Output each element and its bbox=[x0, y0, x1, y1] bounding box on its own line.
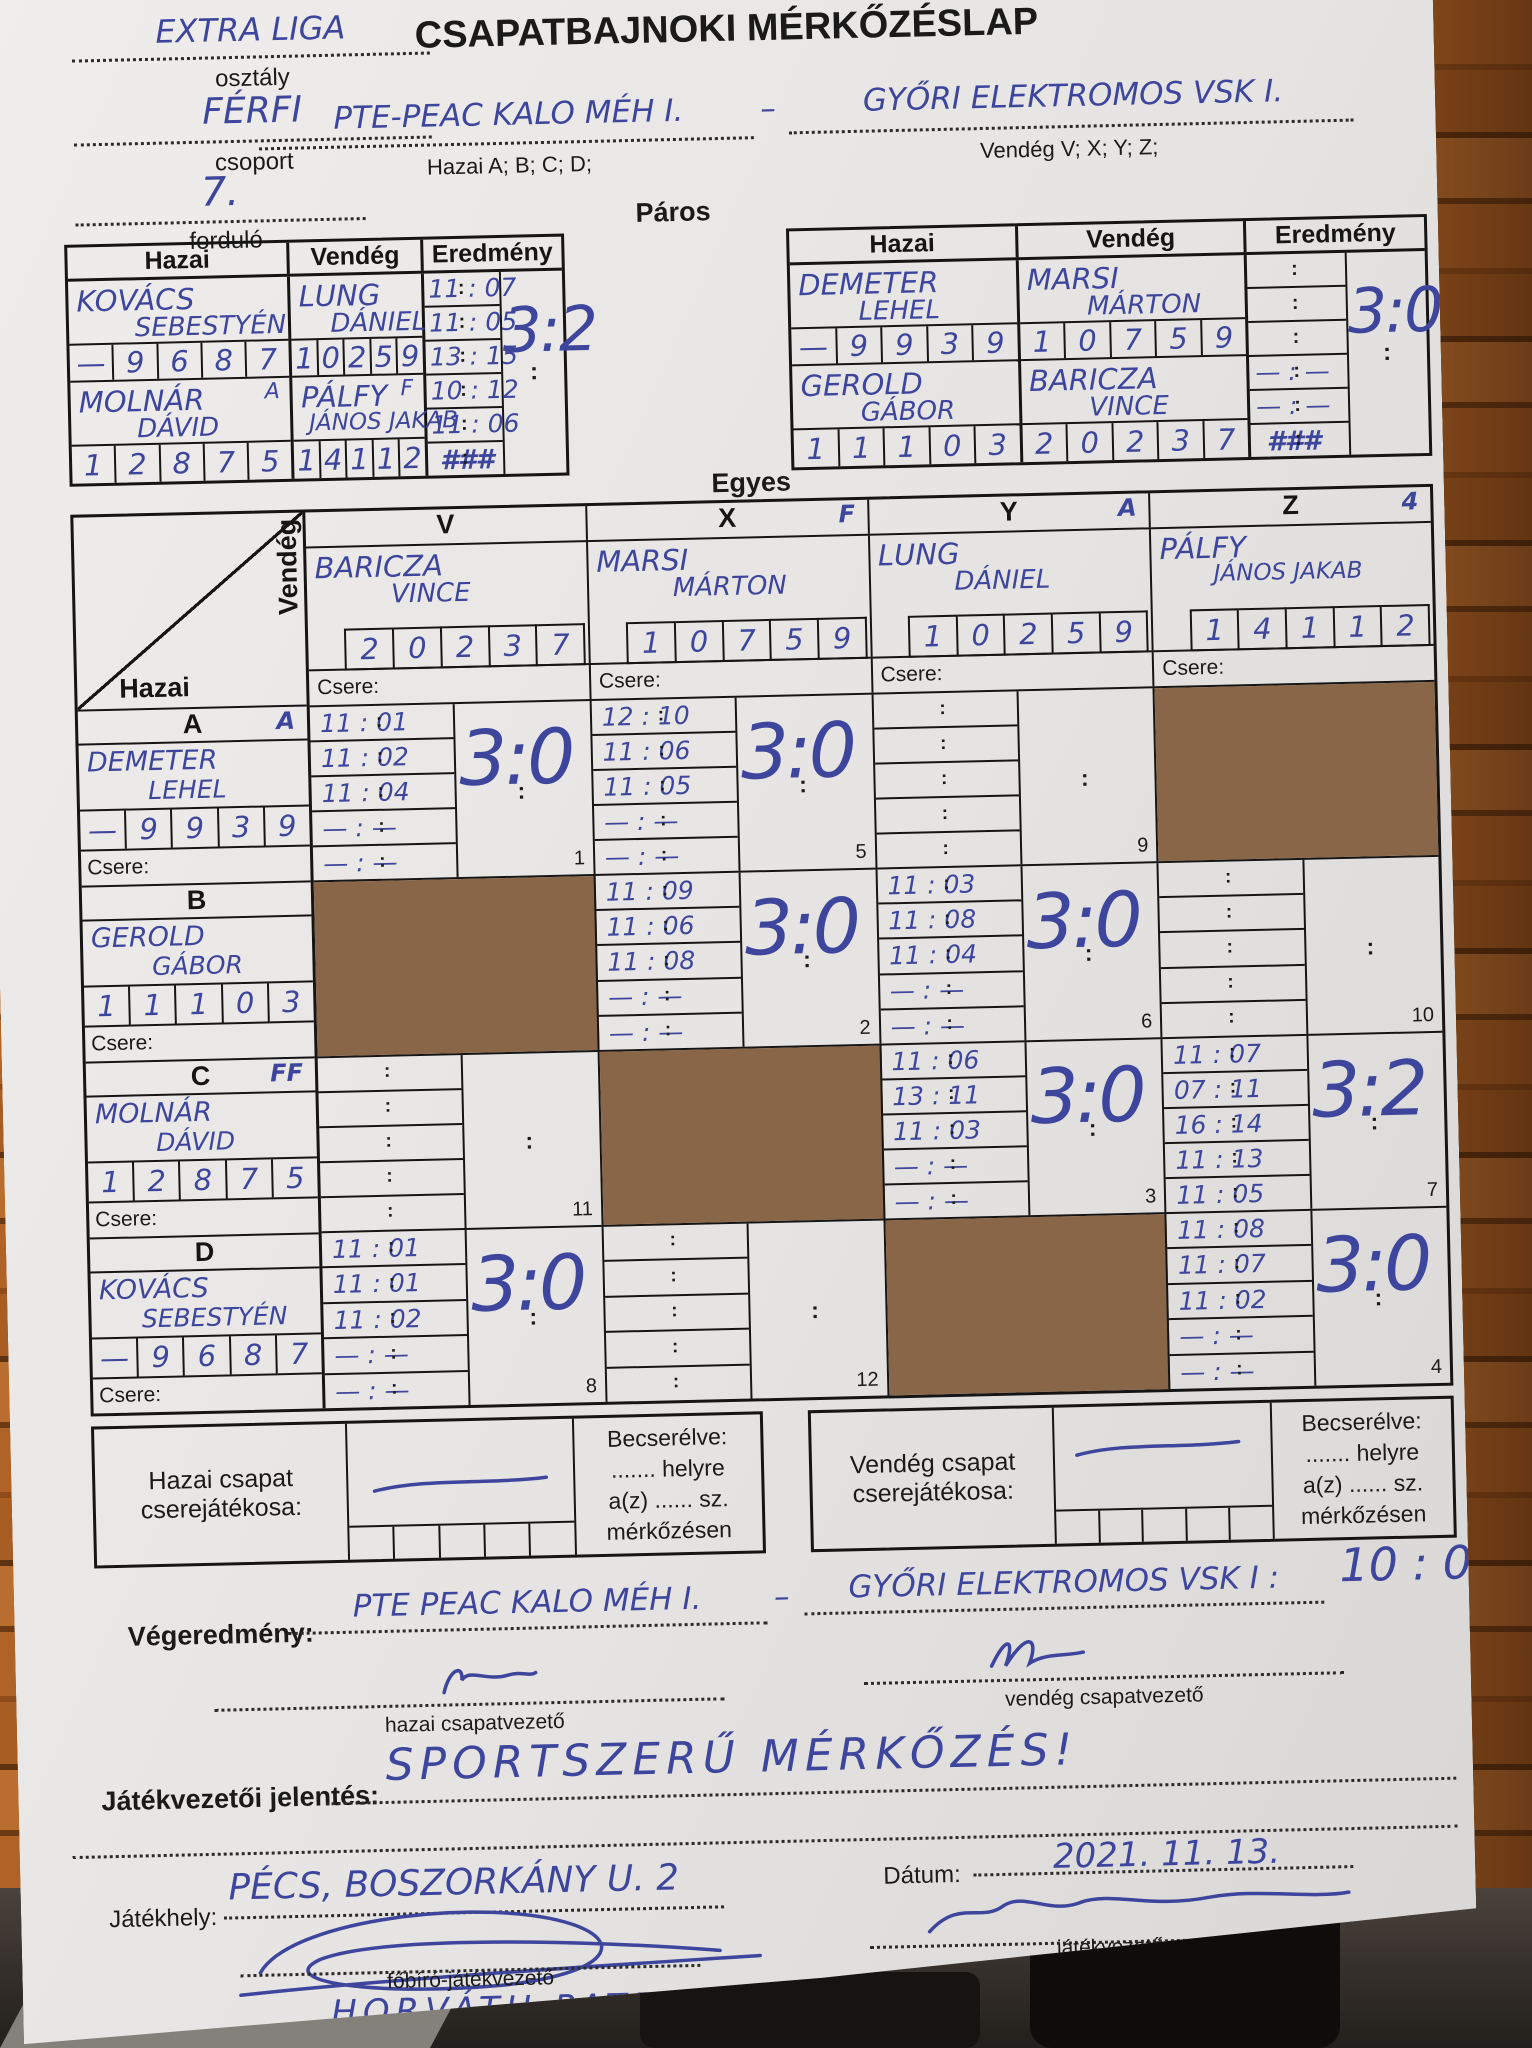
license-row: 10759 bbox=[626, 617, 867, 664]
license-digit: 9 bbox=[833, 621, 852, 655]
license-digit: 9 bbox=[1214, 320, 1233, 354]
license-digit: 1 bbox=[101, 1165, 120, 1199]
license-digit: 1 bbox=[923, 619, 942, 653]
license-row: 10259 bbox=[292, 338, 423, 378]
license-digit: 1 bbox=[189, 987, 208, 1021]
license-digit: 1 bbox=[1205, 613, 1224, 647]
col-vendeg: Vendég bbox=[289, 240, 423, 274]
set-score: 11 : 08 bbox=[607, 946, 696, 977]
player-last-name: DEMETER bbox=[87, 744, 218, 778]
license-digit: 8 bbox=[172, 446, 191, 480]
license-digit: — bbox=[88, 813, 118, 848]
license-digit: 7 bbox=[1123, 322, 1142, 356]
scoresheet-content: EXTRA LIGA osztály FÉRFI csoport 7. ford… bbox=[0, 0, 1462, 2040]
license-digit: 7 bbox=[551, 628, 570, 662]
becserelve-line: ....... helyre bbox=[574, 1451, 761, 1486]
col-letter-X: XF bbox=[587, 500, 869, 540]
license-row: 10759 bbox=[1020, 319, 1246, 361]
license-digit: 2 bbox=[1126, 424, 1145, 458]
set-score: 07 : 11 bbox=[1174, 1074, 1263, 1105]
col-letter-Z: Z4 bbox=[1150, 487, 1430, 527]
match-total: 3:0 bbox=[1315, 1225, 1430, 1304]
match-total: 3:0 bbox=[744, 888, 859, 967]
set-score-cell: 10 : 12 bbox=[426, 374, 502, 410]
row-letter: CFF bbox=[86, 1058, 316, 1097]
license-digit: 1 bbox=[143, 988, 162, 1022]
license-row: 12875 bbox=[72, 442, 292, 484]
page-title: CSAPATBAJNOKI MÉRKŐZÉSLAP bbox=[346, 0, 1107, 59]
license-digit: 2 bbox=[1035, 426, 1054, 460]
group-value: 7. bbox=[200, 169, 239, 216]
match-cell-C-V: 11 bbox=[318, 1052, 604, 1232]
license-row: —9687 bbox=[69, 341, 289, 383]
match-row-B: 11 : 0911 : 0611 : 08— : —— : — 3:02 11 … bbox=[314, 857, 1443, 1058]
match-total: 3:0 bbox=[740, 713, 855, 792]
license-digit: 2 bbox=[1396, 609, 1415, 643]
player-first-name: SEBESTYÉN bbox=[142, 1301, 288, 1333]
pen-dash bbox=[366, 1467, 557, 1501]
license-digit: 0 bbox=[971, 618, 990, 652]
license-digit: 7 bbox=[239, 1162, 258, 1196]
set-score: 11 : 01 bbox=[333, 1268, 422, 1299]
set-score: — : — bbox=[1180, 1356, 1255, 1387]
player-name-cell: KOVÁCSSEBESTYÉN bbox=[90, 1268, 320, 1339]
set-score: 11 : 01 bbox=[320, 707, 409, 738]
becserelve-line: Becserélve: bbox=[1272, 1405, 1452, 1440]
set-score: — : — bbox=[1179, 1320, 1254, 1351]
match-total: 3:2 bbox=[1311, 1050, 1426, 1129]
match-number: 6 bbox=[1141, 1010, 1153, 1033]
match-cell-A-Y: 9 bbox=[873, 688, 1159, 868]
match-total: 3:2 bbox=[502, 298, 597, 362]
license-digit: 1 bbox=[806, 431, 825, 465]
match-number: 5 bbox=[855, 841, 867, 864]
license-digit: 9 bbox=[849, 328, 868, 362]
egyes-corner-cell: Vendég Hazai bbox=[73, 513, 306, 712]
license-digit: 0 bbox=[943, 428, 962, 462]
player-name-cell: GEROLDGÁBOR bbox=[792, 361, 1019, 430]
final-result-score: 10 : 0 bbox=[1339, 1535, 1473, 1592]
license-row: —9687 bbox=[92, 1334, 322, 1379]
player-name-cell: PÁLFYFJÁNOS JAKAB bbox=[293, 375, 425, 442]
set-score: 11 : 02 bbox=[1178, 1285, 1267, 1316]
col-vendeg: Vendég bbox=[1018, 221, 1247, 257]
match-cell-A-V: 11 : 0111 : 0211 : 04— : —— : — 3:01 bbox=[310, 701, 596, 881]
becserelve-line: a(z) ...... sz. bbox=[575, 1482, 762, 1517]
paros-table-away: Hazai Vendég Eredmény DEMETERLEHEL —9939… bbox=[786, 214, 1432, 470]
paros-total-cell: 3:2 bbox=[501, 271, 566, 474]
blocked-cell-C-X bbox=[599, 1045, 885, 1225]
match-number: 2 bbox=[859, 1016, 871, 1039]
license-digit: 3 bbox=[1171, 423, 1190, 457]
home-hint: Hazai A; B; C; D; bbox=[299, 148, 719, 184]
set-score: 11 : 01 bbox=[332, 1233, 421, 1264]
match-number: 8 bbox=[586, 1375, 598, 1398]
set-score: 11 : 04 bbox=[321, 777, 410, 808]
set-score: — : — bbox=[335, 1375, 410, 1406]
player-first-name: GÁBOR bbox=[860, 396, 955, 428]
license-row: —9939 bbox=[791, 324, 1017, 366]
player-first-name: GÁBOR bbox=[152, 950, 243, 981]
col-eredmeny: Eredmény bbox=[1246, 217, 1424, 252]
match-total: 3:0 bbox=[1026, 881, 1141, 960]
license-digit: 5 bbox=[1066, 616, 1085, 650]
player-first-name: MÁRTON bbox=[1087, 289, 1202, 322]
license-row: 14112 bbox=[1189, 604, 1430, 651]
csere-label: Csere: bbox=[93, 1374, 323, 1413]
col-letter-V: V bbox=[305, 506, 587, 546]
license-digit: 8 bbox=[243, 1338, 262, 1372]
match-cell-B-Y: 11 : 0311 : 0811 : 04— : —— : — 3:06 bbox=[877, 864, 1163, 1044]
player-name-cell: MOLNÁRADÁVID bbox=[70, 378, 291, 447]
handwritten-mark: A bbox=[1118, 494, 1137, 522]
license-digit: 1 bbox=[97, 989, 116, 1023]
license-digit: 9 bbox=[151, 1340, 170, 1374]
match-number: 11 bbox=[572, 1198, 593, 1221]
home-player-row-D: D KOVÁCSSEBESTYÉN —9687 Csere: bbox=[90, 1234, 323, 1413]
set-score: — : — bbox=[1256, 390, 1331, 421]
license-digit: — bbox=[799, 329, 829, 364]
set-score-cell: 11 : 06 bbox=[427, 408, 503, 444]
set-score: — : — bbox=[890, 1010, 965, 1041]
license-digit: 9 bbox=[126, 345, 145, 379]
license-digit: 6 bbox=[197, 1339, 216, 1373]
becserelve-line: ....... helyre bbox=[1272, 1436, 1452, 1471]
match-number: 10 bbox=[1411, 1004, 1434, 1027]
player-name-cell: MOLNÁRDÁVID bbox=[87, 1092, 317, 1163]
license-digit: 0 bbox=[408, 631, 427, 665]
handwritten-mark: F bbox=[838, 500, 855, 528]
pen-dash bbox=[1069, 1433, 1250, 1467]
set-score: — : — bbox=[322, 813, 397, 844]
license-row: 20237 bbox=[344, 623, 585, 670]
set-score: 11 : 09 bbox=[605, 876, 694, 907]
set-score: 11 : 08 bbox=[1177, 1214, 1266, 1245]
match-cell-C-Y: 11 : 0613 : 1111 : 03— : —— : — 3:03 bbox=[881, 1039, 1167, 1219]
set-score: 11 : 02 bbox=[333, 1304, 422, 1335]
handwritten-mark: F bbox=[400, 376, 413, 401]
license-digit: 2 bbox=[360, 632, 379, 666]
license-digit: 7 bbox=[258, 342, 277, 376]
hazai-label: Hazai bbox=[119, 672, 190, 705]
match-row-D: 11 : 0111 : 0111 : 02— : —— : — 3:08 12 … bbox=[322, 1208, 1451, 1409]
blocked-cell-B-V bbox=[314, 876, 600, 1056]
handwritten-mark: A bbox=[264, 379, 280, 404]
license-digit: 1 bbox=[852, 430, 871, 464]
row-letter-text: D bbox=[194, 1237, 214, 1267]
license-digit: — bbox=[100, 1341, 130, 1376]
player-first-name: SEBESTYÉN bbox=[135, 310, 287, 343]
license-row: 12875 bbox=[88, 1158, 318, 1203]
csere-label: Csere: bbox=[591, 659, 873, 699]
license-digit: 3 bbox=[940, 326, 959, 360]
away-player-names-row: BARICZAVINCE 20237 MARSIMÁRTON 10759 LUN… bbox=[306, 523, 1434, 672]
away-player-V: BARICZAVINCE 20237 bbox=[306, 542, 590, 670]
set-score: 11 : 13 bbox=[1175, 1144, 1264, 1175]
license-digit: 9 bbox=[986, 325, 1005, 359]
set-score: — : — bbox=[334, 1339, 409, 1370]
set-score-cell bbox=[1248, 287, 1346, 323]
license-row: 14112 bbox=[294, 439, 425, 479]
license-digit: 5 bbox=[1169, 321, 1188, 355]
match-number: 12 bbox=[856, 1369, 879, 1392]
player-name-cell: KOVÁCSSEBESTYÉN bbox=[68, 277, 289, 346]
set-score: — : — bbox=[894, 1185, 969, 1216]
becserelve-line: a(z) ...... sz. bbox=[1273, 1467, 1453, 1502]
match-total: 3:0 bbox=[470, 1245, 585, 1324]
set-score: 11 : 08 bbox=[888, 905, 977, 936]
license-digit: 8 bbox=[214, 343, 233, 377]
set-score: 13 : 11 bbox=[892, 1080, 981, 1111]
license-digit: — bbox=[76, 345, 106, 380]
license-digit: 1 bbox=[350, 442, 369, 476]
col-eredmeny: Eredmény bbox=[423, 237, 562, 271]
player-first-name: MÁRTON bbox=[672, 570, 787, 603]
player-first-name: DÁNIEL bbox=[330, 307, 426, 339]
home-captain-line bbox=[214, 1664, 725, 1712]
away-hint: Vendég V; X; Y; Z; bbox=[859, 131, 1279, 167]
license-digit: 0 bbox=[689, 625, 708, 659]
license-digit: 5 bbox=[286, 1161, 305, 1195]
player-name-cell: LUNGDÁNIEL bbox=[290, 274, 422, 341]
egyes-match-grid: V XF YA Z4 BARICZAVINCE 20237 MARSIMÁRTO… bbox=[305, 487, 1450, 1408]
set-score: — : — bbox=[605, 841, 680, 872]
license-digit: 0 bbox=[1078, 323, 1097, 357]
license-digit: 1 bbox=[1300, 611, 1319, 645]
set-score: 11 : 05 bbox=[603, 771, 692, 802]
home-substitute-label: Hazai csapat cserejátékosa: bbox=[94, 1424, 350, 1566]
set-score: 11 : 04 bbox=[889, 940, 978, 971]
paros-away-players: MARSIMÁRTON 10759 BARICZAVINCE 20237 bbox=[1018, 255, 1251, 462]
set-score: — : — bbox=[604, 806, 679, 837]
match-cell-B-X: 11 : 0911 : 0611 : 08— : —— : — 3:02 bbox=[595, 870, 881, 1050]
csere-label: Csere: bbox=[81, 846, 311, 885]
license-digit: 1 bbox=[297, 443, 316, 477]
crossed-out-mark: ### bbox=[1266, 425, 1320, 457]
license-digit: 1 bbox=[642, 626, 661, 660]
set-score-cell: — : — bbox=[1250, 389, 1348, 425]
match-cell-C-Z: 11 : 0707 : 1116 : 1411 : 1311 : 05 3:27 bbox=[1163, 1032, 1447, 1212]
license-digit: 9 bbox=[895, 327, 914, 361]
license-digit: 7 bbox=[737, 624, 756, 658]
match-number: 9 bbox=[1137, 835, 1149, 858]
away-substitute-field bbox=[1054, 1403, 1275, 1544]
license-digit: 7 bbox=[1217, 422, 1236, 456]
player-last-name: KOVÁCS bbox=[99, 1273, 210, 1306]
csere-label: Csere: bbox=[85, 1022, 315, 1061]
license-digit: 2 bbox=[147, 1164, 166, 1198]
set-score: — : — bbox=[609, 1017, 684, 1048]
away-substitute-label: Vendég csapat cserejátékosa: bbox=[811, 1408, 1057, 1549]
paros-result-column: — : — — : — ### 3:0 bbox=[1247, 251, 1429, 457]
player-first-name: VINCE bbox=[1089, 391, 1169, 423]
paros-total-cell: 3:0 bbox=[1346, 251, 1429, 455]
blocked-cell-D-Y bbox=[885, 1214, 1171, 1396]
license-digit: 4 bbox=[323, 442, 342, 476]
player-first-name: VINCE bbox=[391, 578, 471, 610]
away-captain-label: vendég csapatvezető bbox=[894, 1681, 1314, 1715]
row-letter: B bbox=[82, 882, 312, 921]
set-score: 11 : 06 bbox=[602, 736, 691, 767]
set-score: — : — bbox=[323, 848, 398, 879]
row-letter: AA bbox=[78, 706, 308, 745]
csere-label: Csere: bbox=[1154, 646, 1434, 686]
final-result-label: Végeredmény: bbox=[127, 1618, 314, 1653]
player-name-cell: BARICZAVINCE bbox=[1021, 356, 1248, 425]
license-row: 10259 bbox=[908, 611, 1149, 658]
home-player-row-C: CFF MOLNÁRDÁVID 12875 Csere: bbox=[86, 1058, 319, 1239]
player-name-cell: MARSIMÁRTON bbox=[1018, 255, 1245, 324]
set-score: 11 : 03 bbox=[887, 870, 976, 901]
license-row: —9939 bbox=[80, 806, 310, 851]
set-score: — : — bbox=[893, 1150, 968, 1181]
match-row-C: 11 11 : 0613 : 1111 : 03— : —— : — 3:03 … bbox=[318, 1032, 1447, 1233]
license-digit: 9 bbox=[278, 809, 297, 843]
set-score: 11 : 02 bbox=[321, 742, 410, 773]
paros-section-label: Páros bbox=[555, 194, 791, 230]
col-hazai: Hazai bbox=[67, 243, 290, 279]
row-letter-text: A bbox=[182, 709, 202, 739]
substitute-license-boxes bbox=[1056, 1505, 1272, 1544]
match-number: 3 bbox=[1145, 1185, 1157, 1208]
photo-scene: EXTRA LIGA osztály FÉRFI csoport 7. ford… bbox=[0, 0, 1532, 2048]
player-first-name: LEHEL bbox=[148, 774, 227, 805]
away-captain-line bbox=[863, 1638, 1344, 1685]
license-digit: 7 bbox=[290, 1337, 309, 1371]
license-digit: 2 bbox=[1019, 617, 1038, 651]
player-last-name: MOLNÁR bbox=[95, 1097, 213, 1131]
player-first-name: DÁVID bbox=[156, 1126, 235, 1157]
home-player-row-A: AA DEMETERLEHEL —9939 Csere: bbox=[78, 706, 311, 887]
becserelve-cell: Becserélve: ....... helyre a(z) ...... s… bbox=[573, 1414, 763, 1554]
egyes-home-column: Vendég Hazai AA DEMETERLEHEL —9939 Csere… bbox=[73, 512, 325, 1413]
team-separator: – bbox=[760, 91, 776, 127]
match-cell-B-Z: 10 bbox=[1159, 857, 1443, 1037]
set-score: — : — bbox=[608, 981, 683, 1012]
player-last-name: GEROLD bbox=[91, 921, 206, 955]
match-total: 3:0 bbox=[458, 719, 573, 798]
set-score-cell: 13 : 15 bbox=[425, 340, 501, 376]
league-value: EXTRA LIGA bbox=[155, 8, 346, 50]
player-first-name: LEHEL bbox=[858, 295, 940, 327]
csere-label: Csere: bbox=[89, 1198, 319, 1237]
home-player-row-B: B GEROLDGÁBOR 11103 Csere: bbox=[82, 882, 315, 1063]
becserelve-line: mérkőzésen bbox=[1274, 1498, 1454, 1533]
license-digit: 0 bbox=[1080, 425, 1099, 459]
home-substitute-field bbox=[347, 1419, 576, 1560]
license-digit: 9 bbox=[1114, 615, 1133, 649]
crossed-out-mark: ### bbox=[440, 444, 494, 476]
player-name-cell: DEMETERLEHEL bbox=[79, 740, 309, 811]
match-number: 4 bbox=[1431, 1356, 1443, 1379]
license-digit: 7 bbox=[216, 445, 235, 479]
away-player-X: MARSIMÁRTON 10759 bbox=[588, 536, 872, 664]
player-first-name: JÁNOS JAKAB bbox=[1213, 557, 1362, 586]
license-digit: 2 bbox=[403, 440, 422, 474]
paros-home-players: KOVÁCSSEBESTYÉN —9687 MOLNÁRADÁVID 12875 bbox=[68, 277, 295, 484]
csere-label: Csere: bbox=[872, 653, 1154, 693]
license-digit: 8 bbox=[193, 1163, 212, 1197]
match-total: 3:0 bbox=[1030, 1056, 1145, 1135]
match-cell-D-Z: 11 : 0811 : 0711 : 02— : —— : — 3:04 bbox=[1167, 1208, 1451, 1390]
license-digit: 1 bbox=[1032, 324, 1051, 358]
license-digit: 3 bbox=[232, 810, 251, 844]
away-substitute-box: Vendég csapat cserejátékosa: Becserélve:… bbox=[808, 1396, 1457, 1553]
scoresheet-paper: EXTRA LIGA osztály FÉRFI csoport 7. ford… bbox=[0, 0, 1479, 2046]
license-digit: 1 bbox=[1348, 610, 1367, 644]
becserelve-line: mérkőzésen bbox=[576, 1513, 763, 1548]
hash-cell: ### bbox=[427, 442, 503, 476]
set-score: — : — bbox=[1255, 356, 1330, 387]
license-digit: 9 bbox=[139, 812, 158, 846]
paros-home-players: DEMETERLEHEL —9939 GEROLDGÁBOR 11103 bbox=[790, 260, 1023, 467]
col-hazai: Hazai bbox=[789, 226, 1018, 262]
set-score-cell: 11 : 07 bbox=[424, 272, 500, 308]
license-digit: 4 bbox=[1253, 612, 1272, 646]
set-score: 11 : 07 bbox=[1178, 1249, 1267, 1280]
row-letter: D bbox=[90, 1234, 320, 1273]
match-cell-A-X: 12 : 1011 : 0611 : 05— : —— : — 3:05 bbox=[591, 695, 877, 875]
license-digit: 1 bbox=[295, 341, 314, 375]
license-digit: 0 bbox=[235, 986, 254, 1020]
match-total: 3:0 bbox=[1347, 279, 1442, 343]
match-cell-D-V: 11 : 0111 : 0111 : 02— : —— : — 3:08 bbox=[322, 1227, 608, 1409]
player-first-name: DÁNIEL bbox=[954, 564, 1050, 596]
license-digit: 1 bbox=[84, 448, 103, 482]
license-digit: 5 bbox=[785, 622, 804, 656]
paros-table-home: Hazai Vendég Eredmény KOVÁCSSEBESTYÉN —9… bbox=[64, 234, 569, 487]
license-digit: 9 bbox=[401, 338, 420, 372]
home-substitute-box: Hazai csapat cserejátékosa: Becserélve: … bbox=[91, 1411, 766, 1568]
handwritten-mark: A bbox=[276, 707, 295, 735]
final-result-separator: – bbox=[774, 1579, 790, 1615]
license-digit: 2 bbox=[455, 630, 474, 664]
license-digit: 5 bbox=[374, 339, 393, 373]
license-row: 11103 bbox=[84, 982, 314, 1027]
player-name-cell: GEROLDGÁBOR bbox=[83, 916, 313, 987]
set-score: — : — bbox=[890, 975, 965, 1006]
set-score-cell bbox=[1247, 253, 1345, 289]
match-number: 7 bbox=[1427, 1179, 1439, 1202]
paros-result-column: 11 : 07 11 : 05 13 : 15 10 : 12 11 : 06 … bbox=[424, 271, 567, 476]
row-letter-text: C bbox=[190, 1061, 210, 1091]
handwritten-mark: 4 bbox=[1401, 487, 1418, 515]
license-digit: 3 bbox=[282, 985, 301, 1019]
set-score-cell: — : — bbox=[1249, 355, 1347, 391]
license-digit: 9 bbox=[185, 811, 204, 845]
set-score: 11 : 07 bbox=[1173, 1038, 1262, 1069]
egyes-table: Vendég Hazai AA DEMETERLEHEL —9939 Csere… bbox=[70, 484, 1453, 1417]
hash-cell: ### bbox=[1251, 423, 1349, 457]
license-digit: 3 bbox=[503, 629, 522, 663]
becserelve-cell: Becserélve: ....... helyre a(z) ...... s… bbox=[1272, 1399, 1454, 1539]
license-digit: 0 bbox=[321, 340, 340, 374]
col-letter-Y: YA bbox=[869, 493, 1151, 533]
set-score: 16 : 14 bbox=[1174, 1109, 1263, 1140]
set-score: 11 : 06 bbox=[891, 1045, 980, 1076]
set-score: 12 : 10 bbox=[601, 701, 690, 732]
license-digit: 2 bbox=[128, 447, 147, 481]
away-player-Z: PÁLFYJÁNOS JAKAB 14112 bbox=[1151, 523, 1433, 651]
license-digit: 3 bbox=[988, 427, 1007, 461]
handwritten-mark: FF bbox=[270, 1059, 303, 1088]
match-cell-D-X: 12 bbox=[603, 1220, 889, 1402]
license-digit: 5 bbox=[261, 444, 280, 478]
becserelve-line: Becserélve: bbox=[574, 1420, 761, 1455]
match-number: 1 bbox=[574, 848, 586, 871]
row-letter-text: B bbox=[186, 885, 206, 915]
blocked-cell-A-Z bbox=[1155, 682, 1439, 862]
